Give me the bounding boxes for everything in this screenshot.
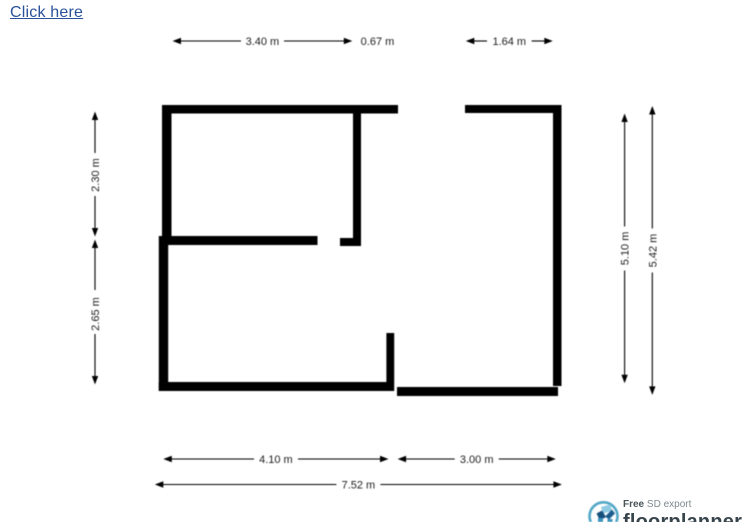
svg-text:5.10 m: 5.10 m: [620, 232, 632, 266]
svg-text:5.42 m: 5.42 m: [647, 234, 659, 268]
svg-text:4.10 m: 4.10 m: [259, 454, 293, 466]
svg-text:7.52 m: 7.52 m: [342, 480, 376, 492]
svg-text:3.00 m: 3.00 m: [460, 454, 494, 466]
svg-text:0.67 m: 0.67 m: [361, 36, 395, 48]
svg-text:2.30 m: 2.30 m: [90, 158, 102, 192]
svg-text:2.65 m: 2.65 m: [90, 297, 102, 331]
svg-text:1.64 m: 1.64 m: [492, 36, 526, 48]
svg-text:3.40 m: 3.40 m: [246, 36, 280, 48]
